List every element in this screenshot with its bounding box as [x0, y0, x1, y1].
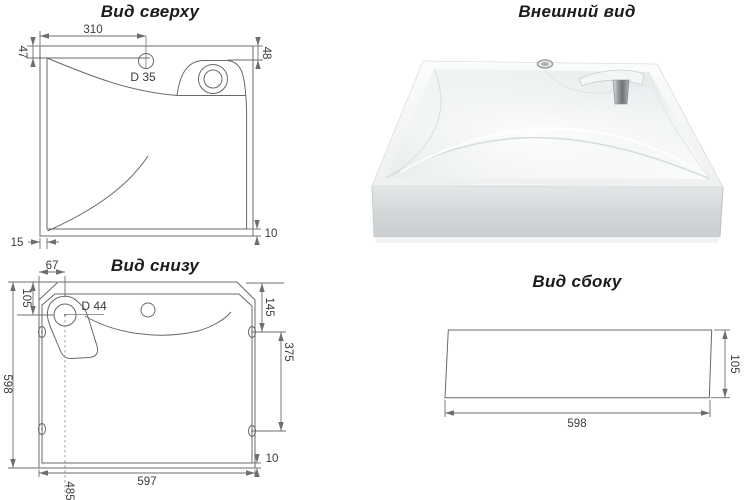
faucet-hole-bottom	[141, 303, 155, 317]
dim-310-label: 310	[83, 24, 102, 36]
side-view-dimensions: 598 105	[445, 330, 740, 430]
sink-photo	[372, 60, 723, 243]
dim-598-side-label: 598	[567, 418, 586, 430]
sink-apron	[372, 186, 723, 237]
dim-597-label: 597	[137, 476, 156, 488]
top-view-outline	[27, 36, 253, 236]
top-view-svg: 310 47 48 D 35 15	[0, 0, 300, 255]
dim-105-side-label: 105	[728, 354, 740, 373]
drawing-sheet: Вид сверху Внешний вид Вид снизу Вид сбо…	[0, 0, 745, 500]
floor-shadow	[374, 237, 720, 243]
dim-d44-label: D 44	[81, 299, 107, 313]
bottom-view-outline	[39, 282, 256, 496]
mounting-holes	[39, 327, 256, 437]
dim-598-label: 598	[1, 374, 13, 393]
external-view-svg	[360, 0, 745, 250]
drain-chrome	[613, 80, 629, 104]
dim-10-top-label: 10	[265, 228, 278, 240]
dim-145-label: 145	[263, 297, 275, 316]
dim-10-bottom-label: 10	[266, 453, 279, 465]
dim-485-label: 485	[63, 481, 75, 500]
dim-105-label: 105	[20, 288, 32, 307]
dim-67-label: 67	[46, 260, 59, 272]
overflow-ring-outer	[199, 65, 228, 94]
bottom-view-svg: 67 105 D 44 598 145 375	[0, 250, 300, 500]
dim-d35-label: D 35	[130, 70, 156, 84]
overflow-ring-inner	[204, 70, 222, 88]
side-view-outline	[445, 330, 712, 398]
dim-48-label: 48	[260, 47, 272, 60]
side-view-svg: 598 105	[420, 250, 745, 500]
basin-curve	[48, 156, 149, 231]
dim-375-label: 375	[282, 342, 294, 361]
basin-curve-bottom	[85, 312, 231, 335]
dim-15-label: 15	[11, 237, 24, 249]
bottom-view-dimensions: 67 105 D 44 598 145 375	[1, 260, 294, 500]
dim-47-label: 47	[16, 46, 28, 59]
